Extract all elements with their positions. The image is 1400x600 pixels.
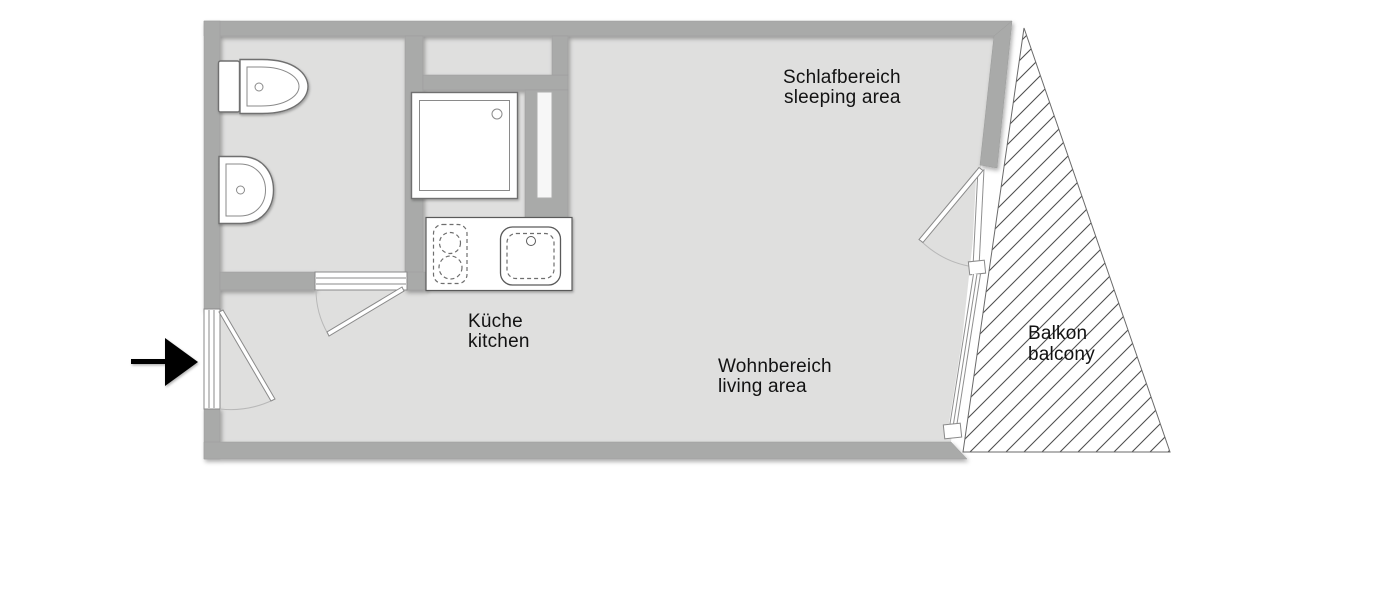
bathroom-bottom-wall-right xyxy=(407,272,426,290)
floor-plan-canvas: Schlafbereich sleeping area Küche kitche… xyxy=(0,0,1400,600)
bottom-wall xyxy=(204,442,967,459)
left-wall-upper xyxy=(204,21,220,310)
toilet-icon xyxy=(219,60,309,114)
shower-icon xyxy=(412,93,518,199)
label-living-en: living area xyxy=(718,376,807,397)
window-mullion xyxy=(968,260,985,275)
label-balcony-de: Balkon xyxy=(1028,323,1087,344)
label-sleeping-de: Schlafbereich xyxy=(783,67,901,88)
window-end-post xyxy=(943,423,961,439)
washbasin-icon xyxy=(219,157,274,224)
niche-bottom-wall xyxy=(423,75,568,90)
floor-plan-page: Schlafbereich sleeping area Küche kitche… xyxy=(0,0,1400,600)
bathroom-threshold xyxy=(315,272,407,290)
kitchen-counter xyxy=(426,218,572,291)
label-kitchen-de: Küche xyxy=(468,311,523,332)
label-kitchen-en: kitchen xyxy=(468,331,530,352)
kitchen-divider-wall-upper xyxy=(552,36,568,75)
label-sleeping-en: sleeping area xyxy=(784,87,901,108)
entrance-arrow-icon xyxy=(131,338,198,386)
kitchen-sink-icon xyxy=(501,227,561,285)
label-balcony-en: balcony xyxy=(1028,344,1095,365)
top-wall xyxy=(204,21,1012,36)
entrance-threshold xyxy=(204,309,220,409)
bathroom-bottom-wall-left xyxy=(220,272,315,290)
wall-slot xyxy=(537,92,552,198)
wall-niche-floor xyxy=(423,36,552,75)
label-living-de: Wohnbereich xyxy=(718,356,832,377)
